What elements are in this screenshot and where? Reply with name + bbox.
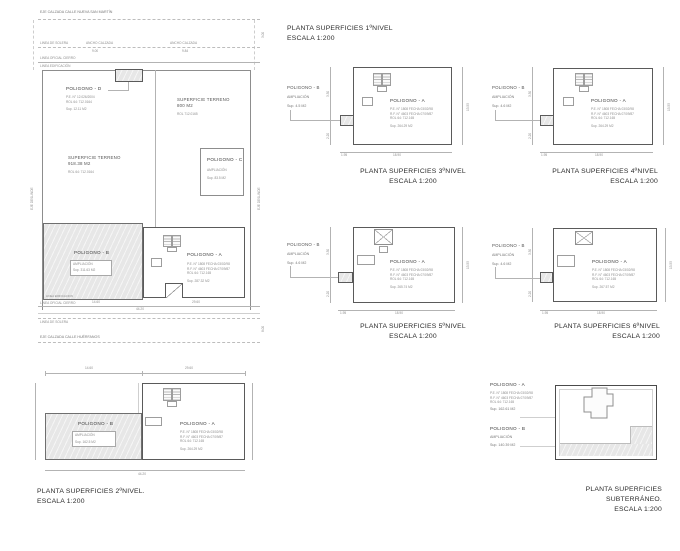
edificacion-label-inner: LINEA EDIFICACION bbox=[46, 294, 73, 298]
dim-top-1: 9.00 bbox=[92, 49, 98, 54]
dim-left-2: 2.20 bbox=[528, 133, 533, 139]
parcel-rect bbox=[353, 227, 455, 303]
poligono-b-sup: Sup. 311.63 M2 bbox=[73, 268, 95, 273]
balcony-tab bbox=[540, 272, 553, 283]
b-name: POLIGONO - B bbox=[287, 85, 320, 90]
terreno-918-m2: 918.38 M2 bbox=[68, 161, 91, 166]
dim-left bbox=[35, 383, 36, 460]
street-axis-line-top bbox=[38, 19, 260, 20]
terreno-918-title: SUPERFICIE TERRENO bbox=[68, 155, 121, 160]
site-plan: EJE CALZADA CALLE NUEVA SAN MARTÍN LINEA… bbox=[0, 0, 280, 360]
b-name: POLIGONO - B bbox=[492, 85, 525, 90]
b-name: POLIGONO - B bbox=[490, 426, 525, 431]
dim-left-1: 3.30 bbox=[326, 91, 331, 97]
parcel-rect bbox=[353, 67, 452, 145]
dim-bottom-1: 14.60 bbox=[92, 300, 100, 305]
plan-level-4: POLIGONO - B AMPLIACIÓN Sup. 4.6 M2 3.30… bbox=[485, 55, 680, 165]
title-level-6-scale: ESCALA 1:200 bbox=[520, 332, 660, 342]
title-level-5-scale: ESCALA 1:200 bbox=[340, 332, 486, 342]
terreno-800-m2: 800 M2 bbox=[177, 103, 193, 108]
a-sup: Sup. 267.57 M2 bbox=[592, 285, 615, 290]
title-level-4: PLANTA SUPERFICIES 4ºNIVEL ESCALA 1:200 bbox=[518, 167, 658, 187]
dim-right-1: 3.00 bbox=[261, 32, 266, 38]
oficial-label-top: LINEA OFICIAL CIERRO bbox=[40, 56, 75, 61]
b-amp: AMPLIACIÓN bbox=[75, 433, 95, 438]
dim-top-2: 29.60 bbox=[185, 366, 193, 371]
a-name: POLIGONO - A bbox=[591, 98, 626, 103]
b-leader-v bbox=[495, 110, 496, 120]
street-label-bottom: EJE CALZADA CALLE HUÉRFANOS bbox=[40, 335, 100, 340]
stairs-icon bbox=[163, 235, 183, 252]
shaded-band-right bbox=[630, 426, 652, 444]
title-level-3-scale: ESCALA 1:200 bbox=[340, 177, 486, 187]
balcony-tab bbox=[340, 115, 354, 126]
b-name: POLIGONO - B bbox=[492, 243, 525, 248]
b-leader-h bbox=[495, 120, 540, 121]
a-sup: Sup. 264.29 M2 bbox=[390, 124, 413, 129]
dim-left-1: 3.30 bbox=[528, 91, 533, 97]
a-line3: ROL 64: 712.165 bbox=[390, 277, 414, 282]
dim-b2: 18.90 bbox=[395, 311, 403, 316]
terreno-918-rol: ROL 64: 712.0164 bbox=[68, 170, 94, 175]
title-level-5: PLANTA SUPERFICIES 5ºNIVEL ESCALA 1:200 bbox=[340, 322, 486, 342]
dim-bottom-2: 29.60 bbox=[192, 300, 200, 305]
a-name: POLIGONO - A bbox=[180, 421, 215, 426]
dim-bottom bbox=[45, 470, 245, 471]
dim-b1: 1.95 bbox=[340, 311, 346, 316]
plan-level-6: POLIGONO - B AMPLIACIÓN Sup. 4.6 M2 3.30… bbox=[485, 215, 680, 325]
a-name: POLIGONO - A bbox=[390, 259, 425, 264]
b-sup: Sup. 140.39 M2 bbox=[490, 443, 515, 448]
a-name: POLIGONO - A bbox=[592, 259, 627, 264]
title-level-1-scale: ESCALA 1:200 bbox=[287, 34, 393, 44]
deslinde-right-label: EJE DESLINDE bbox=[257, 187, 262, 210]
b-leader bbox=[520, 446, 556, 447]
title-level-6: PLANTA SUPERFICIES 6ºNIVEL ESCALA 1:200 bbox=[520, 322, 660, 342]
poligono-b-name: POLIGONO - B bbox=[74, 250, 109, 255]
elevator-icon bbox=[374, 229, 393, 245]
a-line3: ROL 64: 712.165 bbox=[390, 116, 414, 121]
dim-mid bbox=[138, 383, 139, 413]
a-sup: Sup. 264.29 M2 bbox=[180, 447, 203, 452]
b-amp: AMPLIACIÓN bbox=[492, 95, 514, 100]
wall-box-icon bbox=[151, 258, 162, 267]
poligono-c-amp: AMPLIACIÓN bbox=[207, 168, 227, 173]
balcony-tab bbox=[540, 115, 554, 126]
poligono-a-sup: Sup. 287.32 M2 bbox=[187, 279, 210, 284]
plan-level-2: 14.60 29.60 POLIGONO - B AMPLIACIÓN Sup.… bbox=[30, 365, 270, 480]
dim-b2: 18.90 bbox=[393, 153, 401, 158]
entry-notch bbox=[165, 283, 183, 298]
title-level-1: PLANTA SUPERFICIES 1ºNIVEL ESCALA 1:200 bbox=[287, 24, 393, 44]
dim-right bbox=[462, 227, 463, 303]
balcony-tab bbox=[338, 272, 353, 283]
edificacion-label-top: LINEA EDIFICACIÓN bbox=[40, 64, 70, 69]
dim-right bbox=[252, 383, 253, 460]
b-sup: Sup. 4.5 M2 bbox=[287, 104, 306, 109]
plan-subterraneo: POLIGONO - A P.E. N° 1808 FECHA 03/02/98… bbox=[460, 370, 672, 480]
dim-bottom-total: 44.20 bbox=[136, 307, 144, 312]
dim-b2: 18.90 bbox=[595, 153, 603, 158]
b-leader-h bbox=[495, 278, 540, 279]
b-sup: Sup. 4.6 M2 bbox=[492, 104, 511, 109]
dim-top bbox=[45, 373, 245, 374]
a-sup: Sup. 265.74 M2 bbox=[390, 285, 413, 290]
poligono-b-amp: AMPLIACIÓN bbox=[73, 262, 93, 267]
dim-top-1: 14.60 bbox=[85, 366, 93, 371]
street-label-top: EJE CALZADA CALLE NUEVA SAN MARTÍN bbox=[40, 10, 112, 15]
a-sup: Sup. 162.61 M2 bbox=[490, 407, 515, 412]
dim-b2: 18.90 bbox=[597, 311, 605, 316]
title-subterraneo-scale: ESCALA 1:200 bbox=[538, 505, 662, 515]
plan-sheet: EJE CALZADA CALLE NUEVA SAN MARTÍN LINEA… bbox=[0, 0, 680, 551]
poligono-d-line2: ROL 64: 712.0164 bbox=[66, 100, 92, 105]
poligono-d-rect bbox=[115, 69, 143, 82]
b-leader-v bbox=[290, 266, 291, 277]
a-line3: ROL 64: 712.165 bbox=[592, 277, 616, 282]
stairs-icon bbox=[575, 73, 595, 92]
title-level-3: PLANTA SUPERFICIES 3ºNIVEL ESCALA 1:200 bbox=[340, 167, 486, 187]
title-subterraneo-text2: SUBTERRÁNEO. bbox=[538, 495, 662, 505]
poligono-d-name: POLIGONO - D bbox=[66, 86, 102, 91]
a-name: POLIGONO - A bbox=[390, 98, 425, 103]
poligono-d-sup: Sup. 12.11 M2 bbox=[66, 107, 87, 112]
wall-box-icon bbox=[357, 255, 375, 265]
ancho-label-2: ANCHO CALZADA bbox=[170, 41, 197, 46]
dim-top-2: 9.84 bbox=[182, 49, 188, 54]
dim-right-2: 8.00 bbox=[261, 326, 266, 332]
terreno-800-rol: ROL 712.0165 bbox=[177, 112, 198, 117]
dim-right-val: 13.55 bbox=[466, 261, 471, 269]
stairs-icon bbox=[373, 73, 393, 92]
title-level-2: PLANTA SUPERFICIES 2ºNIVEL. ESCALA 1:200 bbox=[37, 487, 145, 507]
oficial-line-bottom bbox=[38, 306, 260, 307]
title-level-2-text: PLANTA SUPERFICIES 2ºNIVEL. bbox=[37, 487, 145, 497]
solera-line-bottom bbox=[38, 318, 260, 319]
plan-level-1: POLIGONO - B AMPLIACIÓN Sup. 4.5 M2 3.30… bbox=[285, 55, 475, 165]
deslinde-left-label: EJE DESLINDE bbox=[30, 187, 35, 210]
dim-b1: 1.95 bbox=[542, 311, 548, 316]
street-axis-line-bottom bbox=[38, 342, 260, 343]
a-line3: ROL 64: 712.165 bbox=[490, 400, 514, 405]
wall-box-icon bbox=[362, 97, 373, 106]
title-subterraneo: PLANTA SUPERFICIES SUBTERRÁNEO. ESCALA 1… bbox=[538, 485, 662, 516]
solera-line-top bbox=[38, 47, 260, 48]
b-leader-v bbox=[290, 110, 291, 120]
boundary-top bbox=[42, 70, 250, 71]
poligono-a-name: POLIGONO - A bbox=[187, 252, 222, 257]
dim-tick-1 bbox=[45, 371, 46, 376]
solera-label-top: LINEA DE SOLERA bbox=[40, 41, 68, 46]
title-subterraneo-text1: PLANTA SUPERFICIES bbox=[538, 485, 662, 495]
dim-left-2: 2.20 bbox=[528, 291, 533, 297]
dim-tick-3 bbox=[245, 371, 246, 376]
dim-left-1: 3.30 bbox=[326, 249, 331, 255]
a-name: POLIGONO - A bbox=[490, 382, 525, 387]
oficial-line-top bbox=[38, 62, 260, 63]
poligono-d-leader-h bbox=[108, 90, 129, 91]
ancho-label-1: ANCHO CALZADA bbox=[86, 41, 113, 46]
poligono-c-sup: Sup. 83.5 M2 bbox=[207, 176, 226, 181]
dim-right-val: 13.55 bbox=[669, 261, 674, 269]
dim-left-2: 2.20 bbox=[326, 291, 331, 297]
b-name: POLIGONO - B bbox=[287, 242, 320, 247]
title-level-2-scale: ESCALA 1:200 bbox=[37, 497, 145, 507]
b-amp: AMPLIACIÓN bbox=[490, 435, 512, 440]
dim-b1: 1.95 bbox=[341, 153, 347, 158]
solera-label-bottom: LINEA DE SOLERA bbox=[40, 320, 68, 325]
a-line3: ROL 64: 712.165 bbox=[180, 439, 204, 444]
shaft-box-icon bbox=[379, 246, 388, 253]
poligono-a-line3: ROL 64: 712.165 bbox=[187, 271, 211, 276]
dim-b1: 1.95 bbox=[541, 153, 547, 158]
dim-left-1: 3.30 bbox=[528, 249, 533, 255]
dim-line-total bbox=[38, 313, 260, 314]
dim-left-2: 2.20 bbox=[326, 133, 331, 139]
a-line3: ROL 64: 712.165 bbox=[591, 116, 615, 121]
wall-box-icon bbox=[563, 97, 574, 106]
dim-right-val: 13.55 bbox=[466, 103, 471, 111]
boundary-right bbox=[250, 70, 251, 310]
terreno-800-title: SUPERFICIE TERRENO bbox=[177, 97, 230, 102]
dim-total: 44.20 bbox=[138, 472, 146, 477]
b-sup: Sup. 162.5 M2 bbox=[75, 440, 96, 445]
b-leader-h bbox=[290, 120, 340, 121]
b-amp: AMPLIACIÓN bbox=[287, 252, 309, 257]
b-leader-v bbox=[495, 267, 496, 278]
dim-tick-2 bbox=[142, 371, 143, 376]
dim-right bbox=[663, 67, 664, 145]
dim-right bbox=[665, 228, 666, 302]
b-amp: AMPLIACIÓN bbox=[492, 253, 514, 258]
title-level-1-text: PLANTA SUPERFICIES 1ºNIVEL bbox=[287, 24, 393, 34]
title-level-4-text: PLANTA SUPERFICIES 4ºNIVEL bbox=[518, 167, 658, 177]
wall-box-icon bbox=[557, 255, 575, 267]
dim-right bbox=[462, 67, 463, 145]
title-level-3-text: PLANTA SUPERFICIES 3ºNIVEL bbox=[340, 167, 486, 177]
left-axis-dash bbox=[33, 20, 34, 70]
dim-right-val: 13.55 bbox=[667, 103, 672, 111]
poligono-d-leader-v bbox=[128, 82, 129, 90]
core-structure-icon bbox=[581, 387, 617, 421]
plan-level-5: POLIGONO - B AMPLIACIÓN Sup. 4.6 M2 3.30… bbox=[285, 215, 475, 325]
stairs-icon bbox=[163, 388, 183, 407]
elevator-icon bbox=[575, 231, 593, 245]
b-name: POLIGONO - B bbox=[78, 421, 113, 426]
poligono-c-name: POLIGONO - C bbox=[207, 157, 243, 162]
title-level-4-scale: ESCALA 1:200 bbox=[518, 177, 658, 187]
shaded-band-bottom bbox=[560, 443, 652, 456]
a-sup: Sup. 264.29 M2 bbox=[591, 124, 614, 129]
oficial-label-bottom: LINEA OFICIAL CIERRO bbox=[40, 301, 75, 306]
b-amp: AMPLIACIÓN bbox=[287, 95, 309, 100]
wall-box-icon bbox=[145, 417, 162, 426]
parcel-divider bbox=[155, 70, 156, 228]
